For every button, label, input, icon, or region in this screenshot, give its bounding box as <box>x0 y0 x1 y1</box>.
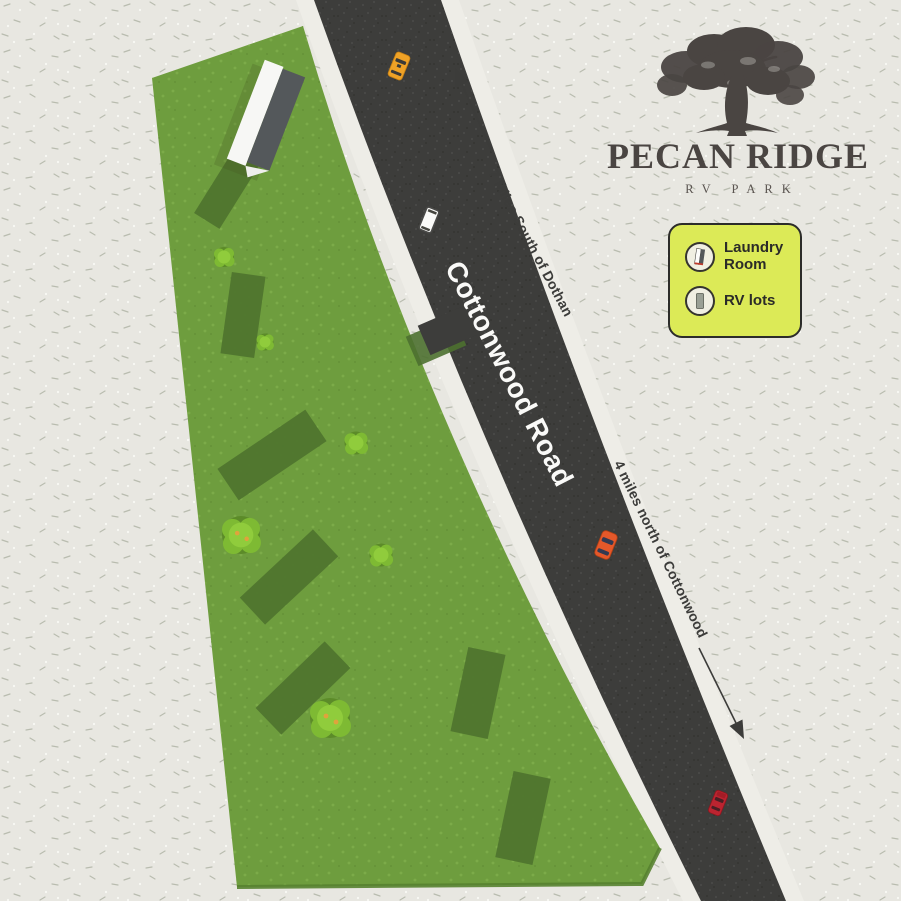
bush <box>345 432 369 455</box>
bush <box>370 544 394 567</box>
large-bush <box>222 516 261 554</box>
oak-tree-icon <box>638 22 838 136</box>
legend-label-laundry: Laundry Room <box>724 240 790 273</box>
legend-row-rv-lots: RV lots <box>685 286 790 316</box>
park-map: Cottonwood Road 7 Miles South of Dothan … <box>0 0 901 901</box>
rv-lot-icon <box>685 286 715 316</box>
legend-label-rv-lots: RV lots <box>724 293 775 310</box>
brand-logo: PECAN RIDGE RV PARK <box>587 22 889 197</box>
brand-tagline: RV PARK <box>587 182 889 197</box>
laundry-building-icon <box>685 242 715 272</box>
bush <box>214 247 235 267</box>
bush <box>257 334 274 351</box>
large-bush <box>310 698 351 738</box>
legend: Laundry Room RV lots <box>668 223 802 338</box>
legend-row-laundry: Laundry Room <box>685 240 790 273</box>
brand-name: PECAN RIDGE <box>587 138 889 174</box>
